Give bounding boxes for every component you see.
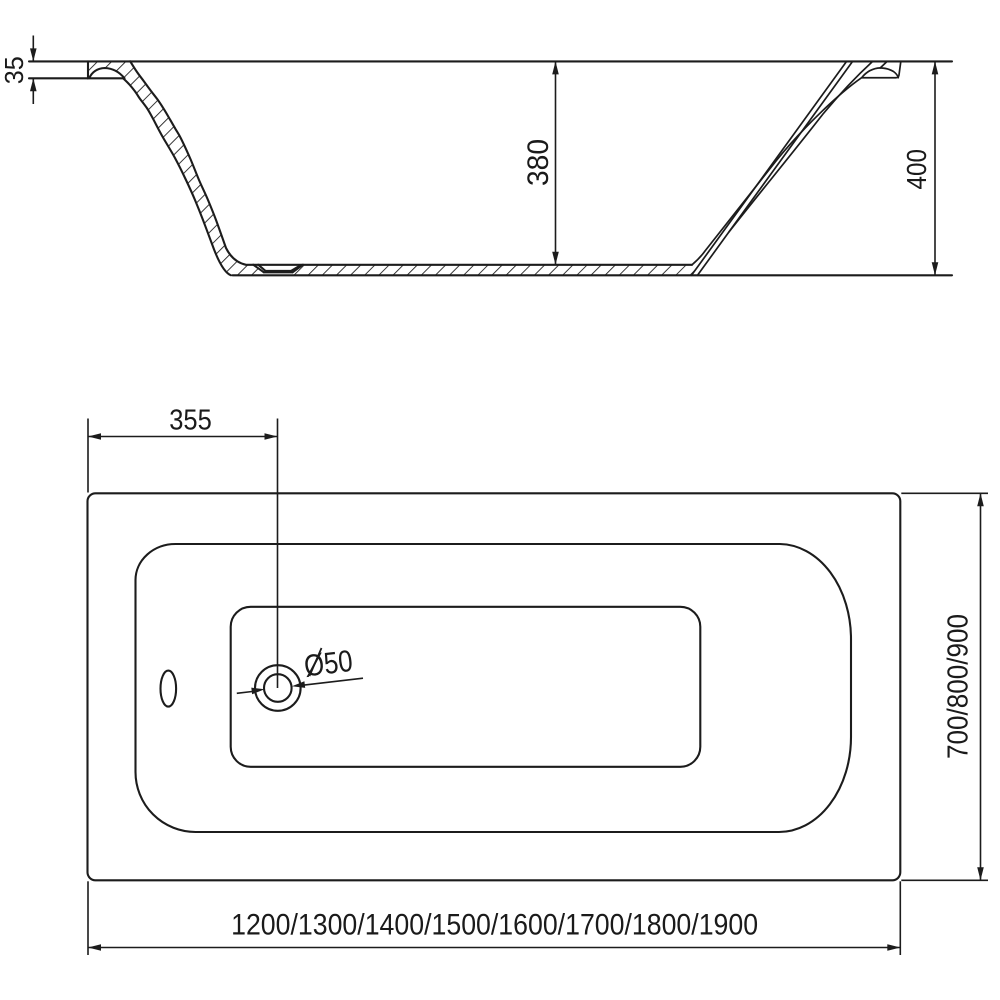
svg-text:1200/1300/1400/1500/1600/1700/: 1200/1300/1400/1500/1600/1700/1800/1900 [231,908,758,941]
svg-text:35: 35 [0,56,29,84]
svg-text:400: 400 [901,149,932,190]
svg-text:700/800/900: 700/800/900 [942,614,974,759]
svg-text:Ø50: Ø50 [302,644,354,684]
svg-text:380: 380 [522,139,555,186]
svg-text:355: 355 [169,404,212,436]
